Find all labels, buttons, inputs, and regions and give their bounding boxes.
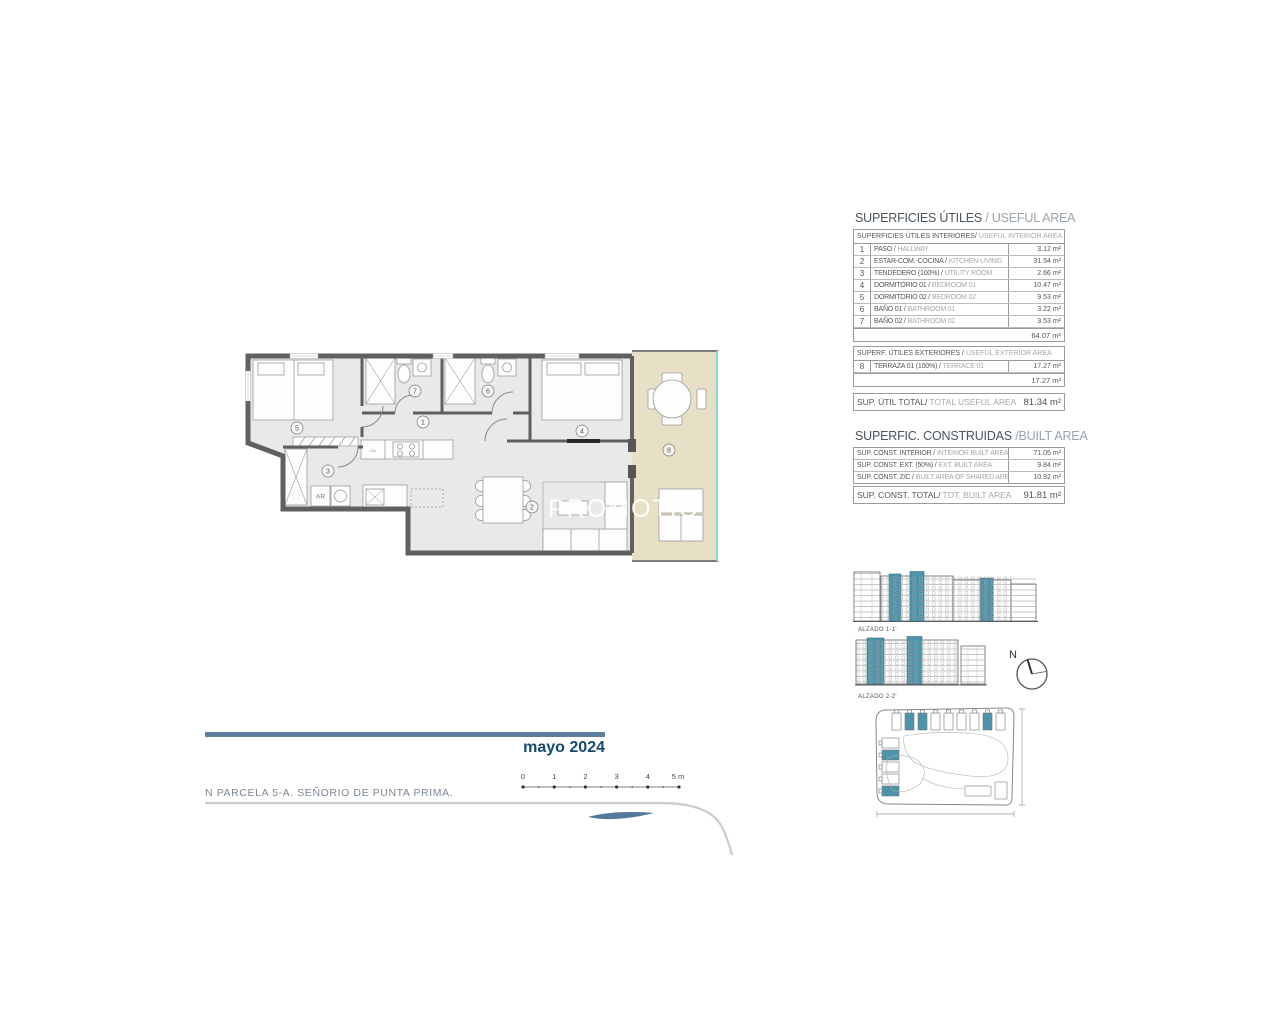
window-marker — [567, 439, 600, 443]
useful-total-label-en: TOTAL USEFUL AREA — [929, 397, 1016, 407]
room-label-3: 3 — [326, 469, 330, 476]
built-area-title: SUPERFIC. CONSTRUIDAS /BUILT AREA — [855, 429, 1065, 443]
row-value: 17.27 m² — [1008, 361, 1064, 372]
footer-accent-bar — [205, 732, 605, 737]
table-row: SUP. CONST. EXT. (50%) /EXT. BUILT AREA … — [854, 460, 1064, 472]
scale-bar-svg: 0 1 2 3 4 5 m — [515, 770, 685, 794]
row-value: 9.53 m² — [1008, 292, 1064, 303]
elevation-1 — [853, 563, 1038, 630]
site-plan-svg — [862, 702, 1030, 824]
footer-curve-svg — [205, 799, 760, 859]
row-value: 31.54 m² — [1008, 256, 1064, 267]
room-label-6: 6 — [486, 389, 490, 396]
elevation-2-label: ALZADO 2-2' — [858, 694, 897, 700]
row-name-es: TENDEDERO (100%) / — [874, 270, 943, 277]
row-name: SUP. CONST. INTERIOR /INTERIOR BUILT ARE… — [854, 448, 1008, 459]
footer-swoosh-svg — [588, 811, 656, 823]
scale-tick: 4 — [646, 772, 650, 781]
row-name-en: BATHROOM 02 — [908, 318, 955, 325]
built-total-row: SUP. CONST. TOTAL/ TOT. BUILT AREA 91.81… — [853, 486, 1065, 504]
useful-total-label-es: SUP. ÚTIL TOTAL/ — [857, 397, 927, 407]
useful-area-title: SUPERFICIES ÚTILES / USEFUL AREA — [855, 211, 1065, 225]
row-name-es: SUP. CONST. Z/C / — [857, 474, 914, 481]
row-number: 6 — [854, 304, 871, 315]
table-row: 3 TENDEDERO (100%) /UTILITY ROOM 2.66 m² — [854, 268, 1064, 280]
table-row: 6 BAÑO 01 /BATHROOM 01 3.22 m² — [854, 304, 1064, 316]
parcel-caption: N PARCELA 5-A. SEÑORIO DE PUNTA PRIMA. — [205, 787, 453, 799]
row-name-es: ESTAR-COM.-COCINA / — [874, 258, 947, 265]
row-name: BAÑO 02 /BATHROOM 02 — [871, 316, 1008, 327]
north-label: N — [1009, 649, 1017, 661]
date-label: mayo 2024 — [405, 739, 605, 757]
scale-tick-labels: 0 1 2 3 4 5 m — [521, 772, 684, 781]
header-es: SUPERF. ÚTILES EXTERIORES / — [857, 350, 964, 357]
useful-interior-table: SUPERFICIES ÚTILES INTERIORES/ USEFUL IN… — [853, 229, 1065, 342]
dining-table — [476, 477, 531, 523]
table-row: 1 PASO /HALLWAY 3.12 m² — [854, 244, 1064, 256]
floor-plan-svg: 1 2 3 4 5 6 7 8 AR CAV — [245, 343, 725, 573]
useful-area-title-es: SUPERFICIES ÚTILES — [855, 211, 982, 225]
row-name-en: UTILITY ROOM — [945, 270, 992, 277]
useful-area-title-en: / USEFUL AREA — [985, 211, 1075, 225]
row-value: 3.12 m² — [1008, 244, 1064, 255]
header-en: USEFUL EXTERIOR AREA — [966, 350, 1052, 357]
ar-label: AR — [316, 494, 325, 501]
building-footprints-left — [879, 738, 899, 796]
scale-tick: 1 — [552, 772, 556, 781]
table-row: 7 BAÑO 02 /BATHROOM 02 3.53 m² — [854, 316, 1064, 328]
row-name-en: BUILT AREA OF SHARED AREAS — [916, 474, 1008, 481]
table-row: SUP. CONST. Z/C /BUILT AREA OF SHARED AR… — [854, 472, 1064, 483]
built-area-title-es: SUPERFIC. CONSTRUIDAS — [855, 429, 1012, 443]
row-number: 4 — [854, 280, 871, 291]
header-en: USEFUL INTERIOR AREA — [979, 233, 1062, 240]
floor-plan: 1 2 3 4 5 6 7 8 AR CAV — [245, 343, 725, 573]
useful-exterior-header: SUPERF. ÚTILES EXTERIORES / USEFUL EXTER… — [854, 347, 1064, 361]
row-value: 3.53 m² — [1008, 316, 1064, 327]
row-name-en: BEDROOM 02 — [932, 294, 976, 301]
row-name-es: DORMITORIO 01 / — [874, 282, 930, 289]
built-area-table: SUP. CONST. INTERIOR /INTERIOR BUILT ARE… — [853, 447, 1065, 484]
exterior-subtotal: 17.27 m² — [854, 373, 1064, 386]
row-name: DORMITORIO 02 /BEDROOM 02 — [871, 292, 1008, 303]
useful-interior-header: SUPERFICIES ÚTILES INTERIORES/ USEFUL IN… — [854, 230, 1064, 244]
row-name: TENDEDERO (100%) /UTILITY ROOM — [871, 268, 1008, 279]
row-number: 7 — [854, 316, 871, 327]
row-number: 2 — [854, 256, 871, 267]
footer-swoosh — [588, 810, 656, 828]
row-number: 1 — [854, 244, 871, 255]
table-row: 8 TERRAZA 01 (100%) /TERRACE 01 17.27 m² — [854, 361, 1064, 373]
row-name-es: DORMITORIO 02 / — [874, 294, 930, 301]
table-row: SUP. CONST. INTERIOR /INTERIOR BUILT ARE… — [854, 448, 1064, 460]
wardrobe — [293, 437, 358, 446]
cav-label: CAV — [370, 449, 378, 453]
building-footprints-top — [892, 710, 1005, 730]
footer-curve — [205, 799, 760, 864]
interior-subtotal: 64.07 m² — [854, 328, 1064, 341]
room-label-2: 2 — [530, 505, 534, 512]
row-name: DORMITORIO 01 /BEDROOM 01 — [871, 280, 1008, 291]
plan-sheet: 1 2 3 4 5 6 7 8 AR CAV PROMOTIO — [0, 0, 1280, 1024]
scale-tick: 2 — [583, 772, 587, 781]
row-value: 10.92 m² — [1008, 472, 1064, 483]
row-name-es: SUP. CONST. INTERIOR / — [857, 450, 935, 457]
row-name-es: PASO / — [874, 246, 896, 253]
row-name-en: INTERIOR BUILT AREA — [937, 450, 1008, 457]
room-label-5: 5 — [295, 426, 299, 433]
row-name: SUP. CONST. Z/C /BUILT AREA OF SHARED AR… — [854, 472, 1008, 483]
area-tables: SUPERFICIES ÚTILES / USEFUL AREA SUPERFI… — [853, 211, 1065, 504]
row-name-en: BEDROOM 01 — [932, 282, 976, 289]
scale-tick: 3 — [615, 772, 619, 781]
table-row: 5 DORMITORIO 02 /BEDROOM 02 9.53 m² — [854, 292, 1064, 304]
bedroom-01-bed — [542, 360, 622, 420]
scale-tick: 0 — [521, 772, 525, 781]
row-name-en: EXT. BUILT AREA — [938, 462, 992, 469]
slider-jamb — [628, 465, 636, 478]
scale-bar: 0 1 2 3 4 5 m — [515, 770, 685, 799]
useful-exterior-table: SUPERF. ÚTILES EXTERIORES / USEFUL EXTER… — [853, 346, 1065, 387]
row-name-es: BAÑO 01 / — [874, 306, 906, 313]
room-label-4: 4 — [580, 429, 584, 436]
useful-total-value: 81.34 m² — [1024, 397, 1062, 408]
row-number: 3 — [854, 268, 871, 279]
compass: N — [1003, 643, 1055, 700]
row-name-es: BAÑO 02 / — [874, 318, 906, 325]
row-name-en: TERRACE 01 — [943, 363, 984, 370]
row-name: ESTAR-COM.-COCINA /KITCHEN-LIVING — [871, 256, 1008, 267]
header-es: SUPERFICIES ÚTILES INTERIORES/ — [857, 233, 977, 240]
row-value: 71.05 m² — [1008, 448, 1064, 459]
built-total-value: 91.81 m² — [1024, 490, 1062, 501]
room-label-7: 7 — [413, 389, 417, 396]
row-name-en: HALLWAY — [898, 246, 929, 253]
row-name-en: KITCHEN-LIVING — [949, 258, 1002, 265]
table-row: 4 DORMITORIO 01 /BEDROOM 01 10.47 m² — [854, 280, 1064, 292]
table-row: 2 ESTAR-COM.-COCINA /KITCHEN-LIVING 31.5… — [854, 256, 1064, 268]
bedroom-02-bed — [253, 360, 333, 420]
elevation-1-svg — [853, 563, 1038, 625]
north-arrow-icon: N — [1003, 643, 1055, 695]
elevation-2 — [855, 633, 987, 696]
row-value: 3.22 m² — [1008, 304, 1064, 315]
row-value: 9.84 m² — [1008, 460, 1064, 471]
room-label-1: 1 — [421, 420, 425, 427]
site-plan — [862, 702, 1030, 829]
room-label-8: 8 — [667, 448, 671, 455]
scale-tick: 5 m — [672, 772, 685, 781]
row-name: BAÑO 01 /BATHROOM 01 — [871, 304, 1008, 315]
row-name-es: TERRAZA 01 (100%) / — [874, 363, 941, 370]
built-total-label-es: SUP. CONST. TOTAL/ — [857, 490, 940, 500]
row-name: PASO /HALLWAY — [871, 244, 1008, 255]
row-value: 2.66 m² — [1008, 268, 1064, 279]
row-value: 10.47 m² — [1008, 280, 1064, 291]
row-name-es: SUP. CONST. EXT. (50%) / — [857, 462, 936, 469]
watermark: PROMOTIO — [548, 495, 700, 524]
built-total-label-en: TOT. BUILT AREA — [942, 490, 1011, 500]
row-name-en: BATHROOM 01 — [908, 306, 955, 313]
slider-jamb — [628, 439, 636, 452]
row-name: TERRAZA 01 (100%) /TERRACE 01 — [871, 361, 1008, 372]
built-area-title-en: /BUILT AREA — [1015, 429, 1087, 443]
elevation-2-svg — [855, 633, 987, 691]
row-name: SUP. CONST. EXT. (50%) /EXT. BUILT AREA — [854, 460, 1008, 471]
useful-total-row: SUP. ÚTIL TOTAL/ TOTAL USEFUL AREA 81.34… — [853, 393, 1065, 411]
row-number: 5 — [854, 292, 871, 303]
row-number: 8 — [854, 361, 871, 372]
